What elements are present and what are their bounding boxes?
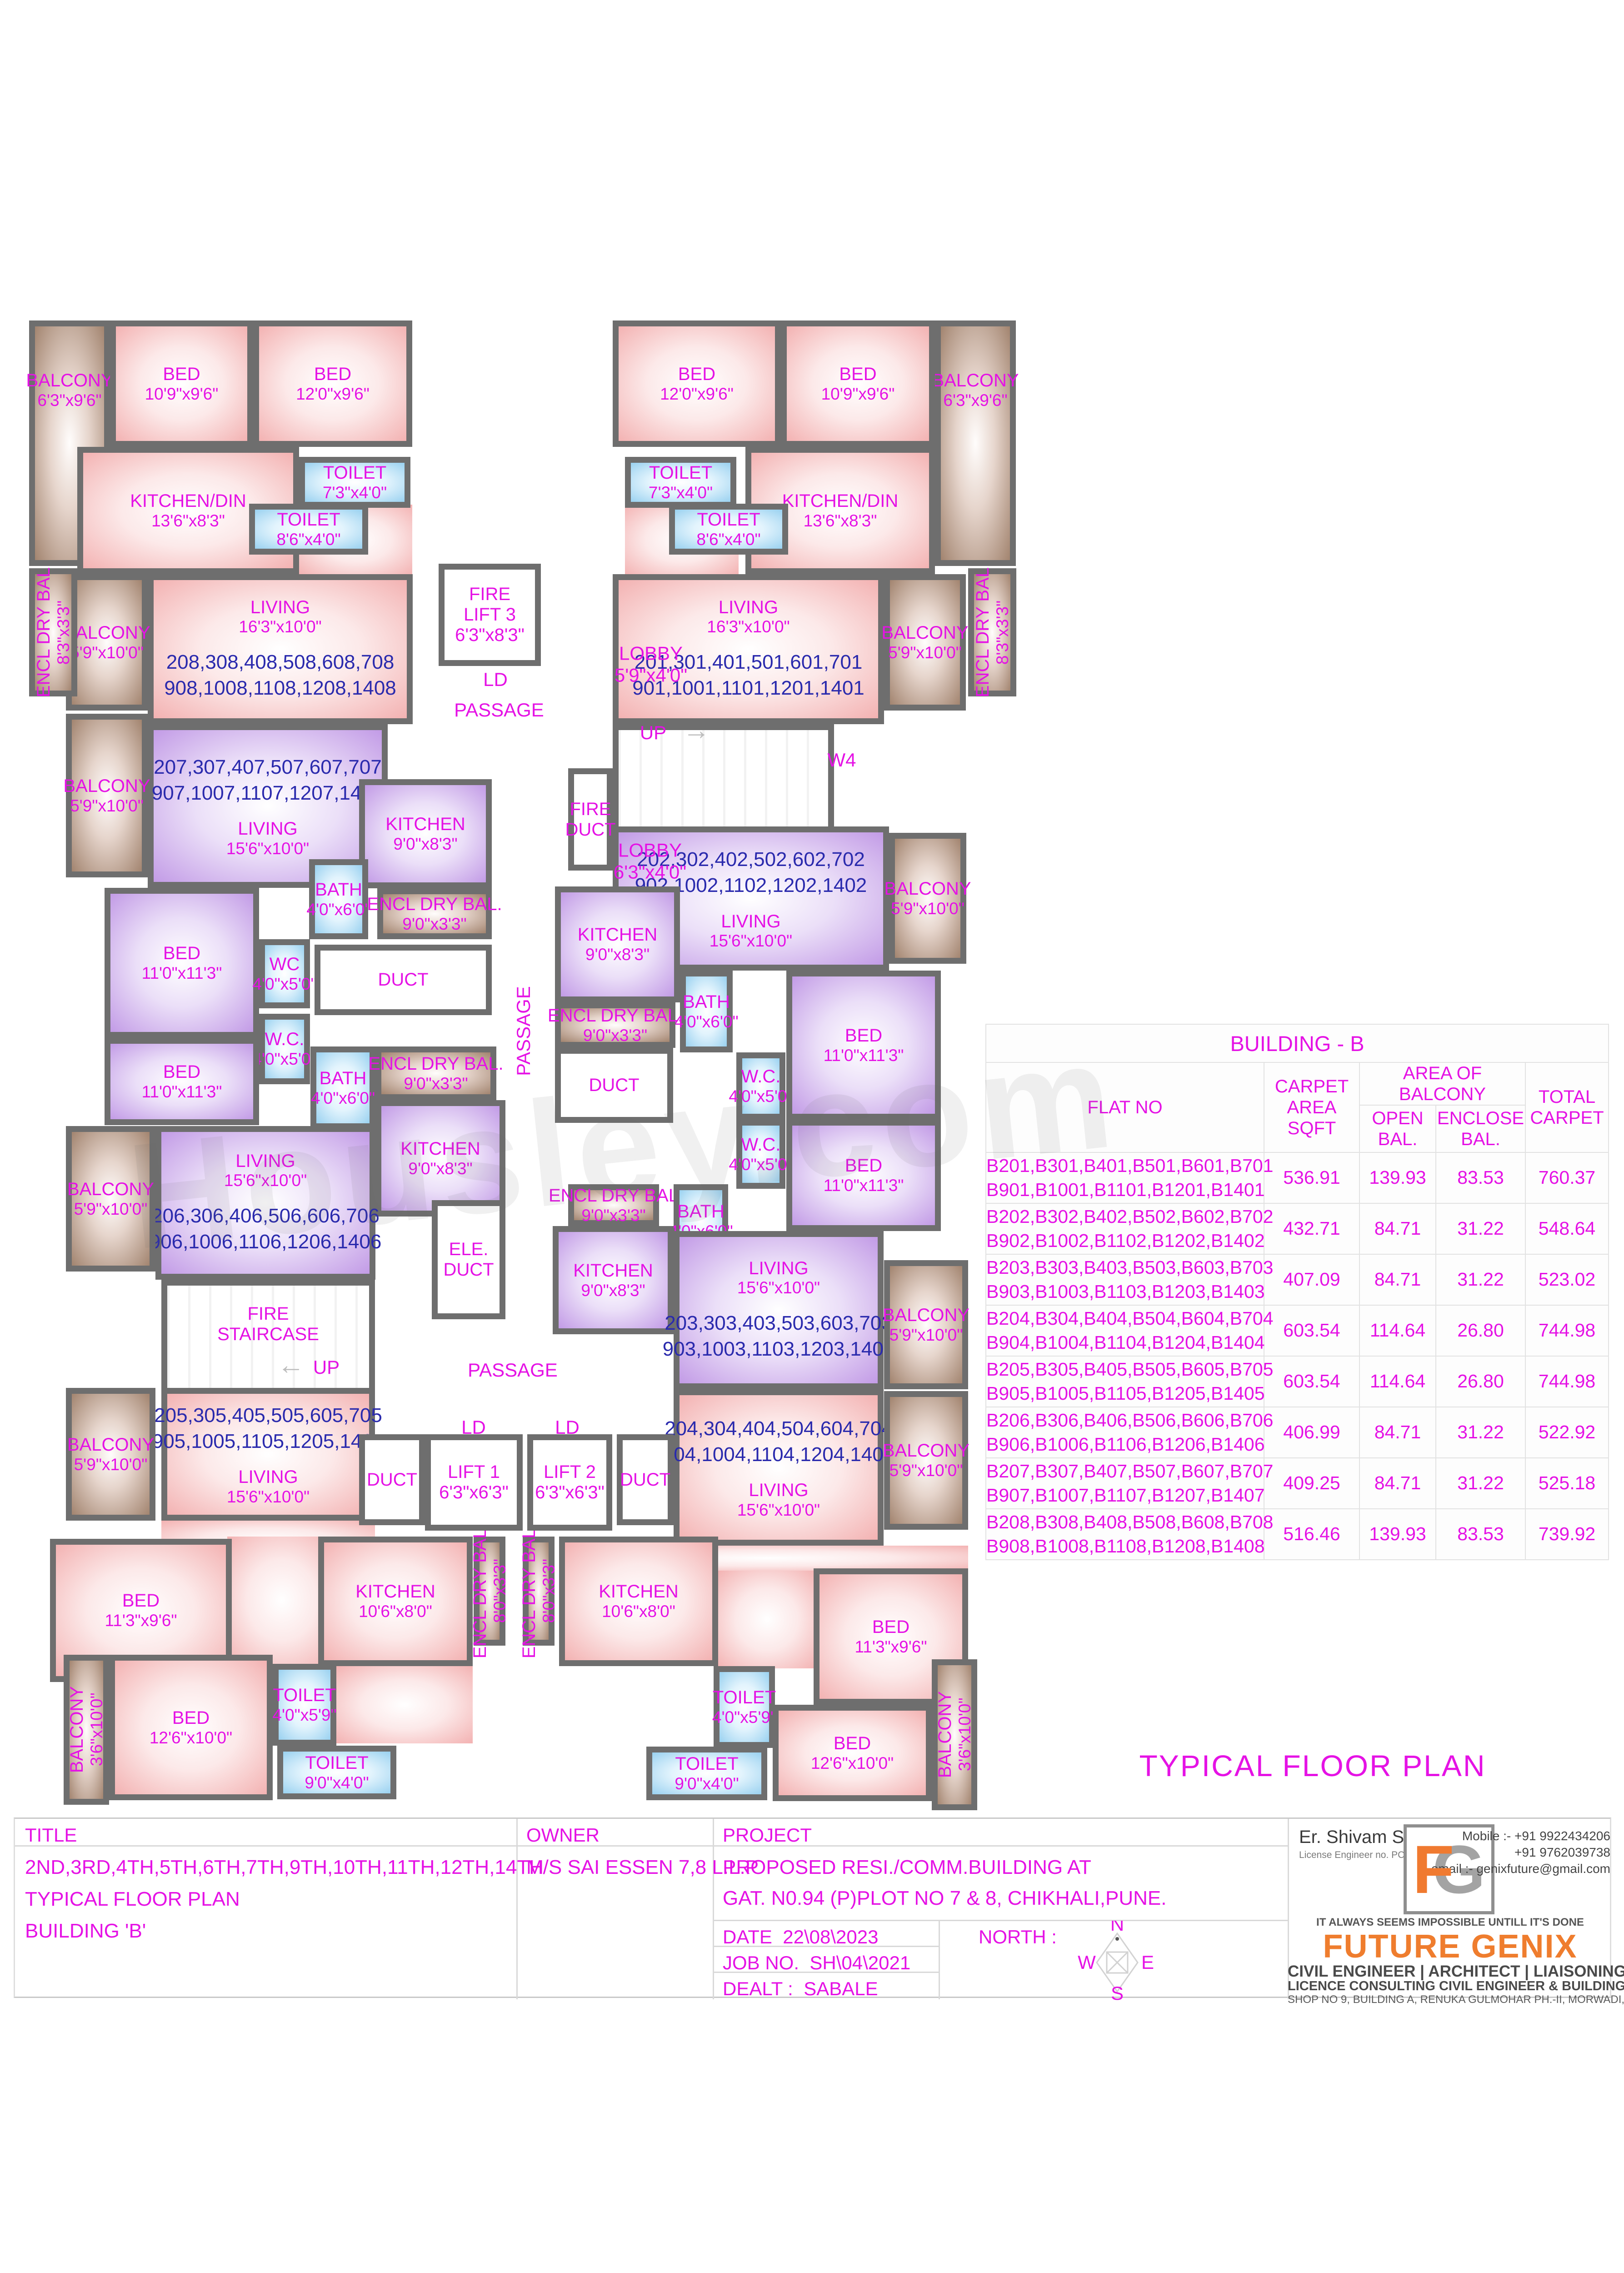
plan-label-passage-lower: PASSAGE [468, 1359, 558, 1381]
cell-enclose: 26.80 [1436, 1356, 1525, 1407]
plan-label-w4: W4 [828, 749, 856, 771]
room-bed-204-2: BED12'6"x10'0" [773, 1705, 932, 1801]
room-fire-duct: FIREDUCT [568, 768, 613, 871]
room-balcony-202: BALCONY5'9"x10'0" [889, 833, 966, 964]
room-label-bed-205-2: BED12'6"x10'0" [150, 1708, 232, 1747]
room-encl-202: ENCL DRY BAL.9'0"x3'3" [555, 1002, 675, 1048]
cell-carpet: 536.91 [1264, 1152, 1359, 1203]
room-label-toilet-205-1: TOILET4'0"x5'9" [272, 1685, 336, 1724]
room-label-toilet-201-2: TOILET8'6"x4'0" [696, 510, 760, 549]
room-balcony-201-living: BALCONY5'9"x10'0" [884, 574, 966, 711]
room-label-bed-207-1: BED11'0"x11'3" [142, 943, 222, 982]
room-bed-207-2: BED11'0"x11'3" [105, 1038, 259, 1125]
room-balcony-204-bed: BALCONY3'6"x10'0" [932, 1659, 977, 1810]
flat-numbers-living-207: 207,307,407,507,607,707907,1007,1107,120… [152, 754, 384, 806]
room-duct-207: DUCT [315, 945, 492, 1015]
room-label-wc-207-2: W.C.4'0"x5'0" [252, 1029, 316, 1068]
room-filler-205c [336, 1666, 473, 1743]
firm-services-2: LICENCE CONSULTING CIVIL ENGINEER & BUIL… [1288, 1979, 1613, 1994]
job-label: JOB NO. [723, 1952, 799, 1973]
room-bed-208-1: BED10'9"x9'6" [110, 320, 253, 447]
room-label-balcony-206: BALCONY5'9"x10'0" [67, 1179, 154, 1218]
room-fire-lift-3: FIRELIFT 36'3"x8'3" [439, 564, 541, 666]
dealt-row: DEALT : SABALE [723, 1978, 878, 2000]
room-encl-206: ENCL DRY BAL.9'0"x3'3" [375, 1046, 496, 1100]
room-bed-202: BED11'0"x11'3" [786, 971, 941, 1120]
room-kitchen-205: KITCHEN10'6"x8'0" [318, 1537, 473, 1666]
flat-numbers-living-204: 204,304,404,504,604,704904,1004,1104,120… [663, 1416, 895, 1467]
cell-enclose: 83.53 [1436, 1509, 1525, 1560]
cell-total: 739.92 [1525, 1509, 1609, 1560]
cell-enclose: 31.22 [1436, 1254, 1525, 1305]
room-duct-202: DUCT [555, 1048, 673, 1123]
room-wc-203: W.C.4'0"x5'0" [736, 1120, 785, 1189]
table-row: B208,B308,B408,B508,B608,B708B908,B1008,… [986, 1509, 1609, 1560]
room-label-bath-207: BATH4'0"x6'0" [306, 880, 370, 919]
room-wc-207-1: WC4'0"x5'0" [259, 939, 310, 1008]
flat-numbers-living-208: 208,308,408,508,608,708908,1008,1108,120… [164, 649, 396, 701]
room-label-wc-207-1: WC4'0"x5'0" [252, 954, 316, 993]
table-row: B203,B303,B403,B503,B603,B703B903,B1003,… [986, 1254, 1609, 1305]
room-living-205: 205,305,405,505,605,705905,1005,1105,120… [161, 1388, 375, 1521]
firm-name: FUTURE GENIX [1288, 1928, 1613, 1965]
room-toilet-205-2: TOILET9'0"x4'0" [277, 1746, 396, 1799]
room-living-208: LIVING16'3"x10'0"208,308,408,508,608,708… [148, 574, 413, 724]
room-label-balcony-204-bed: BALCONY3'6"x10'0" [935, 1691, 974, 1778]
plan-label-up-upper: UP [640, 722, 666, 744]
dealt-value: SABALE [804, 1978, 878, 1999]
room-balcony-208-living: BALCONY5'9"x10'0" [66, 574, 148, 711]
cell-enclose: 26.80 [1436, 1305, 1525, 1356]
room-label-bed-208-1: BED10'9"x9'6" [145, 364, 219, 403]
room-balcony-203: BALCONY5'9"x10'0" [884, 1260, 968, 1389]
room-wc-207-2: W.C.4'0"x5'0" [259, 1014, 310, 1084]
title-line-3: BUILDING 'B' [25, 1920, 146, 1943]
flat-numbers-living-206: 206,306,406,506,606,706906,1006,1106,120… [150, 1203, 382, 1255]
divider [713, 1920, 1288, 1921]
cell-total: 744.98 [1525, 1356, 1609, 1407]
cell-open: 84.71 [1359, 1458, 1436, 1509]
room-label-kitchen-208: KITCHEN/DIN13'6"x8'3" [130, 491, 246, 530]
room-label-wc-203: W.C.4'0"x5'0" [729, 1135, 793, 1174]
room-kitchen-203: KITCHEN9'0"x8'3" [553, 1226, 674, 1334]
job-row: JOB NO. SH\04\2021 [723, 1952, 910, 1974]
room-label-encl-202: ENCL DRY BAL.9'0"x3'3" [548, 1006, 683, 1045]
room-duct-lift-right: DUCT [617, 1434, 674, 1525]
col-area-of-balcony: AREA OF BALCONY [1359, 1062, 1525, 1105]
room-label-balcony-202: BALCONY5'9"x10'0" [884, 879, 971, 918]
cell-carpet: 516.46 [1264, 1509, 1359, 1560]
room-label-bed-204-2: BED12'6"x10'0" [811, 1733, 894, 1772]
room-kitchen-207: KITCHEN9'0"x8'3" [359, 779, 492, 888]
project-line-2: GAT. N0.94 (P)PLOT NO 7 & 8, CHIKHALI,PU… [723, 1887, 1166, 1910]
room-label-bed-201-2: BED10'9"x9'6" [821, 364, 895, 403]
table-row: B206,B306,B406,B506,B606,B706B906,B1006,… [986, 1407, 1609, 1458]
room-kitchen-206: KITCHEN9'0"x8'3" [375, 1100, 505, 1217]
room-label-fire-lift-3: FIRELIFT 36'3"x8'3" [455, 584, 525, 645]
col-total-carpet: TOTALCARPET [1525, 1062, 1609, 1152]
room-label-fire-duct: FIREDUCT [565, 799, 615, 840]
job-value: SH\04\2021 [810, 1952, 910, 1973]
cell-total: 760.37 [1525, 1152, 1609, 1203]
room-label-balcony-201-top: BALCONY6'3"x9'6" [932, 370, 1019, 410]
room-bed-201-2: BED10'9"x9'6" [781, 320, 935, 447]
room-label-bed-201-1: BED12'0"x9'6" [660, 364, 734, 403]
room-label-balcony-207: BALCONY5'9"x10'0" [63, 776, 150, 815]
cell-open: 84.71 [1359, 1407, 1436, 1458]
cell-carpet: 603.54 [1264, 1356, 1359, 1407]
room-label-bed-207-2: BED11'0"x11'3" [142, 1062, 222, 1101]
col-open-bal: OPEN BAL. [1359, 1105, 1436, 1152]
room-kitchen-204: KITCHEN10'6"x8'0" [559, 1537, 718, 1666]
room-label-fire-staircase: FIRESTAIRCASE [217, 1304, 319, 1345]
room-label-living-203: LIVING15'6"x10'0"203,303,403,503,603,703… [663, 1258, 895, 1362]
room-label-toilet-208-2: TOILET8'6"x4'0" [276, 510, 340, 549]
room-label-living-206: LIVING15'6"x10'0"206,306,406,506,606,706… [150, 1151, 382, 1255]
room-label-toilet-204-2: TOILET9'0"x4'0" [675, 1754, 739, 1793]
room-label-bed-205-1: BED11'3"x9'6" [105, 1591, 177, 1630]
room-balcony-205-bed: BALCONY3'6"x10'0" [64, 1655, 109, 1805]
table-row: B202,B302,B402,B502,B602,B702B902,B1002,… [986, 1203, 1609, 1254]
dealt-label: DEALT : [723, 1978, 793, 1999]
plan-label-lobby-201: LOBBY5'9"x4'0" [615, 643, 687, 687]
room-ele-duct: ELE.DUCT [432, 1200, 505, 1319]
cell-total: 525.18 [1525, 1458, 1609, 1509]
room-label-living-208: LIVING16'3"x10'0"208,308,408,508,608,708… [164, 597, 396, 701]
room-label-duct-202: DUCT [589, 1075, 639, 1096]
room-label-encl-203: ENCL DRY BAL9'0"x3'3" [549, 1186, 679, 1225]
cell-open: 139.93 [1359, 1152, 1436, 1203]
compass-e: E [1141, 1952, 1154, 1973]
cell-carpet: 406.99 [1264, 1407, 1359, 1458]
table-row: B204,B304,B404,B504,B604,B704B904,B1004,… [986, 1305, 1609, 1356]
room-label-balcony-204: BALCONY5'9"x10'0" [883, 1441, 969, 1480]
divider [516, 1819, 518, 1999]
room-label-encl-201: ENCL DRY BAL8'3"x3'3" [973, 567, 1012, 697]
room-label-bed-208-2: BED12'0"x9'6" [296, 364, 370, 403]
cell-enclose: 83.53 [1436, 1152, 1525, 1203]
firm-mobile-2: +91 9762039738 [1514, 1845, 1610, 1860]
room-toilet-208-2: TOILET8'6"x4'0" [249, 504, 368, 555]
cell-flats: B202,B302,B402,B502,B602,B702B902,B1002,… [986, 1203, 1264, 1254]
cell-open: 84.71 [1359, 1203, 1436, 1254]
fg-logo-f: F [1413, 1830, 1454, 1909]
cell-enclose: 31.22 [1436, 1458, 1525, 1509]
room-bed-205-2: BED12'6"x10'0" [109, 1655, 273, 1800]
cell-carpet: 603.54 [1264, 1305, 1359, 1356]
room-encl-201: ENCL DRY BAL8'3"x3'3" [968, 568, 1016, 696]
room-label-encl-207: ENCL DRY BAL.9'0"x3'3" [367, 894, 502, 933]
room-toilet-201-1: TOILET7'3"x4'0" [625, 457, 736, 508]
plan-title: TYPICAL FLOOR PLAN [1139, 1748, 1486, 1783]
date-value: 22\08\2023 [783, 1926, 878, 1948]
table-row: B207,B307,B407,B507,B607,B707B907,B1007,… [986, 1458, 1609, 1509]
date-row: DATE 22\08\2023 [723, 1926, 878, 1948]
plan-label-up-lower: UP [313, 1357, 340, 1378]
firm-address: SHOP NO 9, BUILDING A, RENUKA GULMOHAR P… [1288, 1993, 1613, 2006]
title-line-2: TYPICAL FLOOR PLAN [25, 1888, 240, 1911]
cell-total: 523.02 [1525, 1254, 1609, 1305]
room-label-balcony-208-top: BALCONY6'3"x9'6" [26, 370, 113, 410]
title-line-1: 2ND,3RD,4TH,5TH,6TH,7TH,9TH,10TH,11TH,12… [25, 1856, 544, 1879]
plan-label-ld-lift1: LD [461, 1417, 486, 1438]
room-label-living-205: 205,305,405,505,605,705905,1005,1105,120… [152, 1402, 385, 1507]
plan-label-arrow-up-lower: ← [277, 1349, 305, 1381]
room-label-bed-202: BED11'0"x11'3" [824, 1026, 904, 1065]
room-encl-204: ENCL DRY BAL.8'0"x3'3" [523, 1537, 555, 1646]
cell-total: 744.98 [1525, 1305, 1609, 1356]
room-label-kitchen-201: KITCHEN/DIN13'6"x8'3" [782, 491, 899, 530]
cell-carpet: 409.25 [1264, 1458, 1359, 1509]
room-label-living-204: 204,304,404,504,604,704904,1004,1104,120… [663, 1416, 895, 1520]
table-row: B205,B305,B405,B505,B605,B705B905,B1005,… [986, 1356, 1609, 1407]
flat-numbers-living-205: 205,305,405,505,605,705905,1005,1105,120… [152, 1402, 385, 1454]
area-table: BUILDING - BFLAT NOCARPETAREA SQFTAREA O… [985, 1024, 1608, 1560]
room-wc-202: W.C.4'0"x5'0" [736, 1052, 785, 1120]
room-label-balcony-205: BALCONY5'9"x10'0" [67, 1435, 154, 1474]
room-encl-208: ENCL DRY BAL8'3"x3'3" [29, 568, 77, 696]
room-kitchen-202: KITCHEN9'0"x8'3" [555, 886, 680, 1002]
title-section-label: TITLE [25, 1824, 77, 1846]
cell-open: 84.71 [1359, 1254, 1436, 1305]
col-carpet-area: CARPETAREA SQFT [1264, 1062, 1359, 1152]
compass-w: W [1078, 1952, 1096, 1973]
table-title: BUILDING - B [986, 1024, 1609, 1062]
cell-flats: B208,B308,B408,B508,B608,B708B908,B1008,… [986, 1509, 1264, 1560]
divider [939, 1920, 940, 1999]
project-line-1: PROPOSED RESI./COMM.BUILDING AT [723, 1856, 1091, 1879]
room-label-toilet-204-1: TOILET4'0"x5'9" [712, 1687, 776, 1727]
cell-flats: B206,B306,B406,B506,B606,B706B906,B1006,… [986, 1407, 1264, 1458]
room-label-lift-1: LIFT 16'3"x6'3" [439, 1462, 509, 1503]
room-label-kitchen-206: KITCHEN9'0"x8'3" [400, 1139, 480, 1178]
cell-open: 139.93 [1359, 1509, 1436, 1560]
plan-label-arrow-up-upper: → [683, 715, 710, 746]
north-compass-icon: N W E S [1074, 1921, 1160, 2000]
plan-label-ld-lift2: LD [555, 1417, 580, 1438]
firm-services: CIVIL ENGINEER | ARCHITECT | LIAISONING [1288, 1963, 1613, 1981]
room-label-duct-207: DUCT [378, 970, 428, 990]
room-label-lift-2: LIFT 26'3"x6'3" [535, 1462, 605, 1503]
room-label-kitchen-205: KITCHEN10'6"x8'0" [355, 1582, 435, 1621]
room-encl-205: ENCL DRY BAL.8'0"x3'3" [474, 1537, 505, 1646]
room-duct-lift-left: DUCT [359, 1434, 425, 1525]
room-balcony-205: BALCONY5'9"x10'0" [66, 1388, 155, 1521]
cell-total: 548.64 [1525, 1203, 1609, 1254]
room-label-kitchen-203: KITCHEN9'0"x8'3" [573, 1261, 653, 1300]
room-bed-208-2: BED12'0"x9'6" [253, 320, 412, 447]
divider [15, 1845, 1288, 1847]
compass-n: N [1110, 1921, 1124, 1935]
room-lift-2: LIFT 26'3"x6'3" [527, 1434, 612, 1531]
cell-flats: B207,B307,B407,B507,B607,B707B907,B1007,… [986, 1458, 1264, 1509]
north-label: NORTH : [979, 1926, 1057, 1948]
cell-open: 114.64 [1359, 1356, 1436, 1407]
room-label-duct-lift-right: DUCT [620, 1470, 670, 1490]
room-toilet-201-2: TOILET8'6"x4'0" [669, 504, 788, 555]
cell-flats: B204,B304,B404,B504,B604,B704B904,B1004,… [986, 1305, 1264, 1356]
project-section-label: PROJECT [723, 1824, 812, 1846]
room-balcony-201-top: BALCONY6'3"x9'6" [935, 320, 1016, 566]
plan-label-lobby-202: LOBBY6'3"x4'0" [614, 840, 686, 884]
room-lift-1: LIFT 16'3"x6'3" [425, 1434, 523, 1531]
room-label-duct-lift-left: DUCT [367, 1470, 417, 1490]
room-living-204: 204,304,404,504,604,704904,1004,1104,120… [674, 1389, 884, 1546]
room-balcony-204: BALCONY5'9"x10'0" [884, 1391, 968, 1530]
plan-label-passage-upper: PASSAGE [454, 699, 544, 721]
cell-open: 114.64 [1359, 1305, 1436, 1356]
room-label-bed-204-1: BED11'3"x9'6" [854, 1617, 927, 1656]
room-balcony-206: BALCONY5'9"x10'0" [66, 1126, 155, 1272]
building-area-table: BUILDING - BFLAT NOCARPETAREA SQFTAREA O… [985, 1024, 1609, 1560]
room-bath-207: BATH4'0"x6'0" [309, 859, 368, 939]
room-label-living-207: 207,307,407,507,607,707907,1007,1107,120… [152, 754, 384, 858]
room-label-balcony-203: BALCONY5'9"x10'0" [883, 1305, 969, 1344]
room-label-balcony-205-bed: BALCONY3'6"x10'0" [67, 1686, 106, 1773]
room-label-toilet-208-1: TOILET7'3"x4'0" [323, 463, 387, 502]
room-living-203: LIVING15'6"x10'0"203,303,403,503,603,703… [674, 1231, 884, 1389]
cell-enclose: 31.22 [1436, 1203, 1525, 1254]
room-label-encl-205: ENCL DRY BAL.8'0"x3'3" [470, 1523, 509, 1658]
title-block: TITLE 2ND,3RD,4TH,5TH,6TH,7TH,9TH,10TH,1… [14, 1817, 1611, 1998]
room-toilet-205-1: TOILET4'0"x5'9" [273, 1664, 336, 1746]
owner-section-label: OWNER [526, 1824, 600, 1846]
room-label-kitchen-207: KITCHEN9'0"x8'3" [385, 814, 465, 853]
room-label-kitchen-204: KITCHEN10'6"x8'0" [599, 1582, 679, 1621]
firm-email: email :- genixfuture@gmail.com [1431, 1862, 1610, 1876]
col-enclose-bal: ENCLOSE BAL. [1436, 1105, 1525, 1152]
room-label-kitchen-202: KITCHEN9'0"x8'3" [578, 925, 658, 964]
cell-carpet: 407.09 [1264, 1254, 1359, 1305]
room-bath-206: BATH4'0"x6'0" [310, 1046, 375, 1129]
room-filler-204b [718, 1571, 816, 1668]
date-label: DATE [723, 1926, 772, 1948]
table-row: B201,B301,B401,B501,B601,B701B901,B1001,… [986, 1152, 1609, 1203]
room-bed-207-1: BED11'0"x11'3" [105, 888, 259, 1038]
room-label-toilet-205-2: TOILET9'0"x4'0" [305, 1753, 369, 1792]
room-label-balcony-201-living: BALCONY5'9"x10'0" [881, 623, 968, 662]
room-label-bath-202: BATH4'0"x6'0" [674, 992, 738, 1031]
flat-numbers-living-203: 203,303,403,503,603,703903,1003,1103,120… [663, 1310, 895, 1362]
room-toilet-208-1: TOILET7'3"x4'0" [299, 457, 410, 508]
room-label-bath-206: BATH4'0"x6'0" [311, 1068, 375, 1107]
room-label-wc-202: W.C.4'0"x5'0" [729, 1066, 793, 1106]
room-bed-203: BED11'0"x11'3" [786, 1120, 941, 1231]
floor-plan-sheet: { "meta":{"watermark":"Housley.com"}, "p… [0, 0, 1624, 2273]
room-balcony-207: BALCONY5'9"x10'0" [66, 714, 148, 877]
room-encl-203: ENCL DRY BAL9'0"x3'3" [568, 1184, 659, 1226]
plan-label-passage-mid: PASSAGE [513, 986, 535, 1076]
cell-total: 522.92 [1525, 1407, 1609, 1458]
room-bed-201-1: BED12'0"x9'6" [613, 320, 781, 447]
room-label-encl-204: ENCL DRY BAL.8'0"x3'3" [519, 1523, 558, 1658]
room-label-toilet-201-1: TOILET7'3"x4'0" [649, 463, 713, 502]
plan-label-ld-firelift: LD [483, 669, 508, 691]
cell-enclose: 31.22 [1436, 1407, 1525, 1458]
room-label-encl-208: ENCL DRY BAL8'3"x3'3" [34, 567, 73, 697]
room-label-ele-duct: ELE.DUCT [443, 1239, 494, 1280]
cell-flats: B205,B305,B405,B505,B605,B705B905,B1005,… [986, 1356, 1264, 1407]
firm-tagline: IT ALWAYS SEEMS IMPOSSIBLE UNTILL IT'S D… [1288, 1916, 1613, 1929]
col-flat-no: FLAT NO [986, 1062, 1264, 1152]
room-toilet-204-2: TOILET9'0"x4'0" [646, 1747, 767, 1800]
room-label-bed-203: BED11'0"x11'3" [824, 1156, 904, 1195]
cell-flats: B203,B303,B403,B503,B603,B703B903,B1003,… [986, 1254, 1264, 1305]
cell-flats: B201,B301,B401,B501,B601,B701B901,B1001,… [986, 1152, 1264, 1203]
room-label-encl-206: ENCL DRY BAL.9'0"x3'3" [368, 1054, 503, 1093]
room-living-206: LIVING15'6"x10'0"206,306,406,506,606,706… [155, 1126, 375, 1280]
room-toilet-204-1: TOILET4'0"x5'9" [714, 1666, 775, 1748]
compass-s: S [1111, 1983, 1124, 2000]
room-encl-207: ENCL DRY BAL.9'0"x3'3" [377, 888, 492, 939]
cell-carpet: 432.71 [1264, 1203, 1359, 1254]
room-bath-202: BATH4'0"x6'0" [680, 971, 733, 1052]
firm-mobile-1: Mobile :- +91 9922434206 [1462, 1829, 1610, 1843]
